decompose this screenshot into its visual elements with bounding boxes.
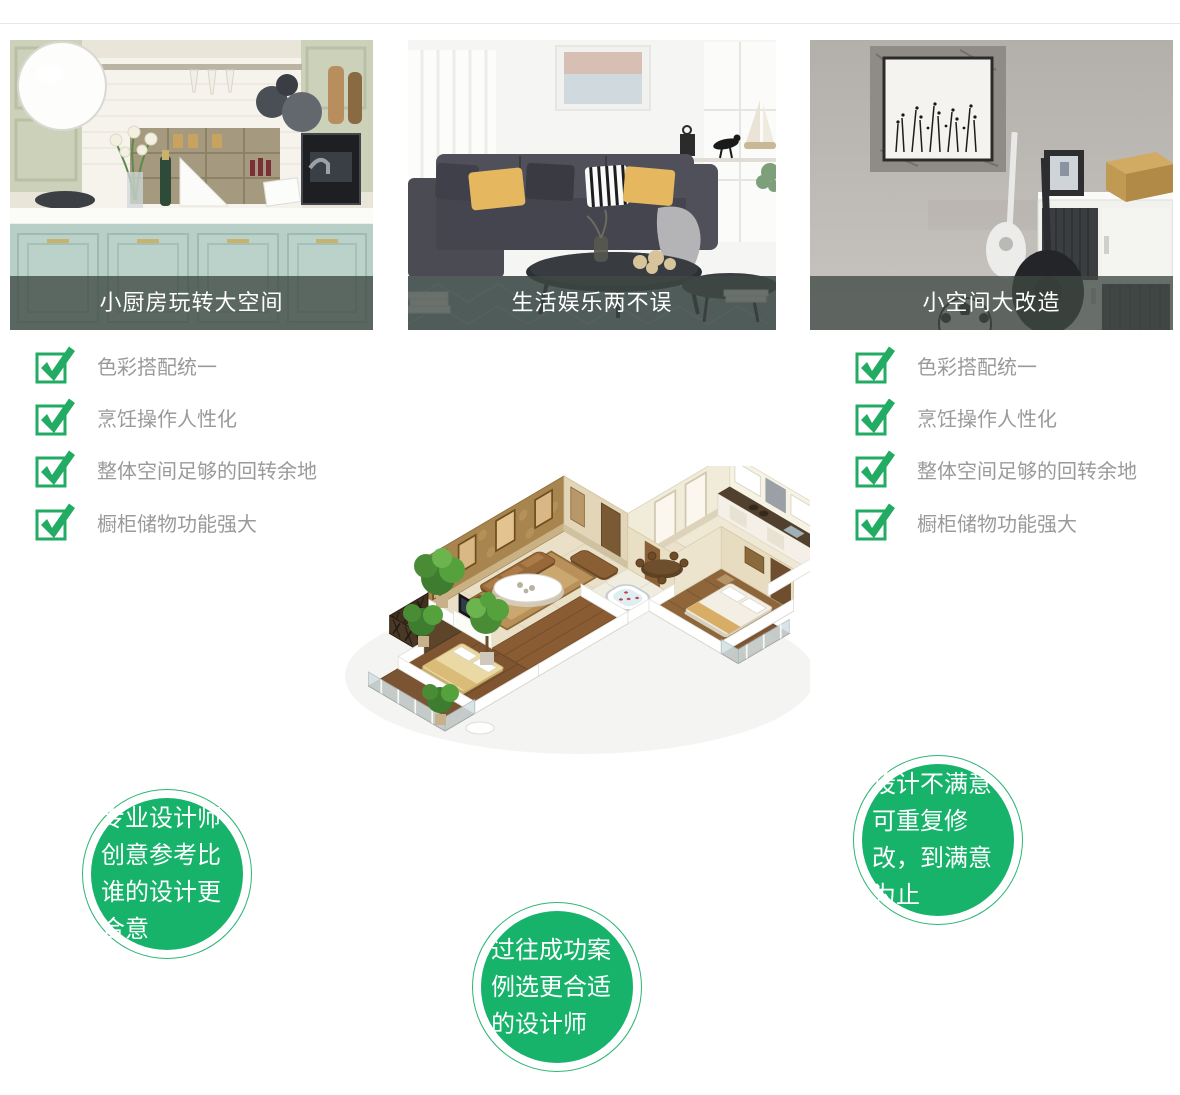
checklist-item: 烹饪操作人性化 <box>35 398 237 436</box>
checklist-item-label: 橱柜储物功能强大 <box>97 508 257 537</box>
card-caption-text: 小厨房玩转大空间 <box>99 290 283 315</box>
checklist-item-label: 整体空间足够的回转余地 <box>917 455 1137 484</box>
bubble-text: 设计不满意可重复修改，到满意为止 <box>862 766 1014 914</box>
check-icon <box>855 503 897 541</box>
checklist-item: 色彩搭配统一 <box>855 346 1037 384</box>
card-caption-text: 生活娱乐两不误 <box>511 290 672 315</box>
check-icon <box>35 346 77 384</box>
check-icon <box>855 346 897 384</box>
benefit-bubble-designer: 专业设计师创意参考比谁的设计更合意 <box>82 789 252 959</box>
checklist-item: 烹饪操作人性化 <box>855 398 1057 436</box>
check-icon <box>35 503 77 541</box>
bubble-circle: 设计不满意可重复修改，到满意为止 <box>862 764 1014 916</box>
bubble-text: 过往成功案例选更合适的设计师 <box>481 932 633 1043</box>
bubble-circle: 过往成功案例选更合适的设计师 <box>481 911 633 1063</box>
card-caption: 生活娱乐两不误 <box>408 276 776 330</box>
checklist-item-label: 色彩搭配统一 <box>917 351 1037 380</box>
bubble-text: 专业设计师创意参考比谁的设计更合意 <box>91 800 243 948</box>
check-icon <box>855 398 897 436</box>
checklist-item-label: 色彩搭配统一 <box>97 351 217 380</box>
checklist-item-label: 橱柜储物功能强大 <box>917 508 1077 537</box>
checklist-item: 橱柜储物功能强大 <box>35 503 257 541</box>
benefit-bubble-revision: 设计不满意可重复修改，到满意为止 <box>853 755 1023 925</box>
promo-section: 小厨房玩转大空间 <box>0 0 1180 1095</box>
checklist-item: 橱柜储物功能强大 <box>855 503 1077 541</box>
checklist-item-label: 烹饪操作人性化 <box>917 403 1057 432</box>
benefit-bubble-cases: 过往成功案例选更合适的设计师 <box>472 902 642 1072</box>
check-icon <box>35 398 77 436</box>
check-icon <box>35 450 77 488</box>
card-caption-text: 小空间大改造 <box>922 290 1060 315</box>
checklist-item: 整体空间足够的回转余地 <box>855 450 1137 488</box>
checklist-item: 色彩搭配统一 <box>35 346 217 384</box>
feature-card-living-room[interactable]: 生活娱乐两不误 <box>408 40 776 330</box>
card-caption: 小厨房玩转大空间 <box>10 276 373 330</box>
floorplan-render <box>330 466 810 824</box>
check-icon <box>855 450 897 488</box>
checklist-item: 整体空间足够的回转余地 <box>35 450 317 488</box>
checklist-item-label: 烹饪操作人性化 <box>97 403 237 432</box>
card-caption: 小空间大改造 <box>810 276 1173 330</box>
floorplan-image <box>330 466 810 824</box>
section-divider <box>0 23 1180 24</box>
bubble-circle: 专业设计师创意参考比谁的设计更合意 <box>91 798 243 950</box>
feature-card-small-space[interactable]: 小空间大改造 <box>810 40 1173 330</box>
feature-card-kitchen[interactable]: 小厨房玩转大空间 <box>10 40 373 330</box>
checklist-item-label: 整体空间足够的回转余地 <box>97 455 317 484</box>
